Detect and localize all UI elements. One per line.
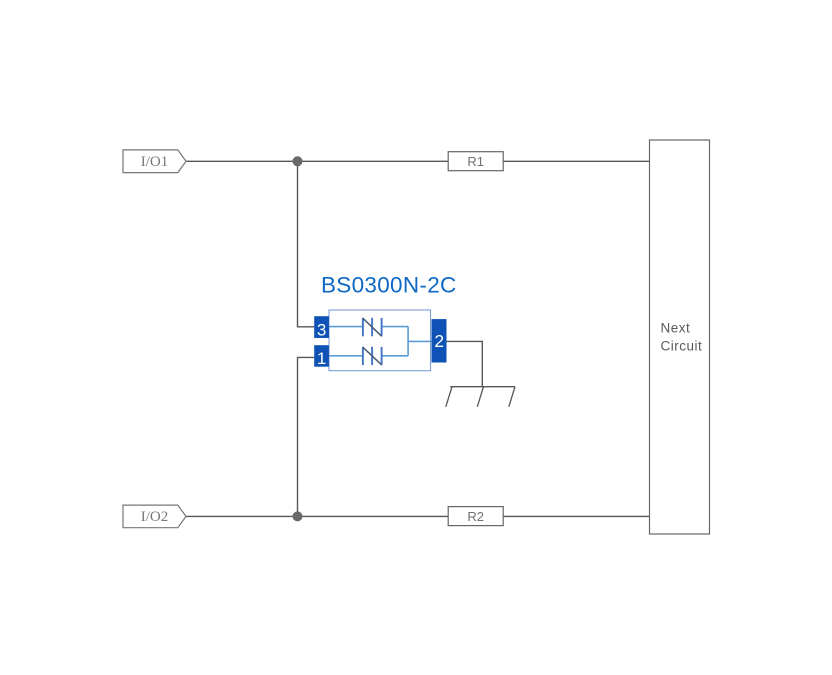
svg-text:I/O1: I/O1 (141, 154, 169, 170)
svg-text:BS0300N-2C: BS0300N-2C (321, 273, 457, 298)
svg-text:Circuit: Circuit (661, 339, 703, 354)
svg-text:R2: R2 (467, 509, 484, 524)
svg-text:R1: R1 (467, 154, 484, 169)
svg-text:3: 3 (317, 320, 326, 339)
svg-text:I/O2: I/O2 (141, 509, 169, 525)
svg-text:Next: Next (661, 321, 691, 336)
svg-text:1: 1 (317, 349, 326, 368)
svg-text:2: 2 (434, 331, 444, 351)
